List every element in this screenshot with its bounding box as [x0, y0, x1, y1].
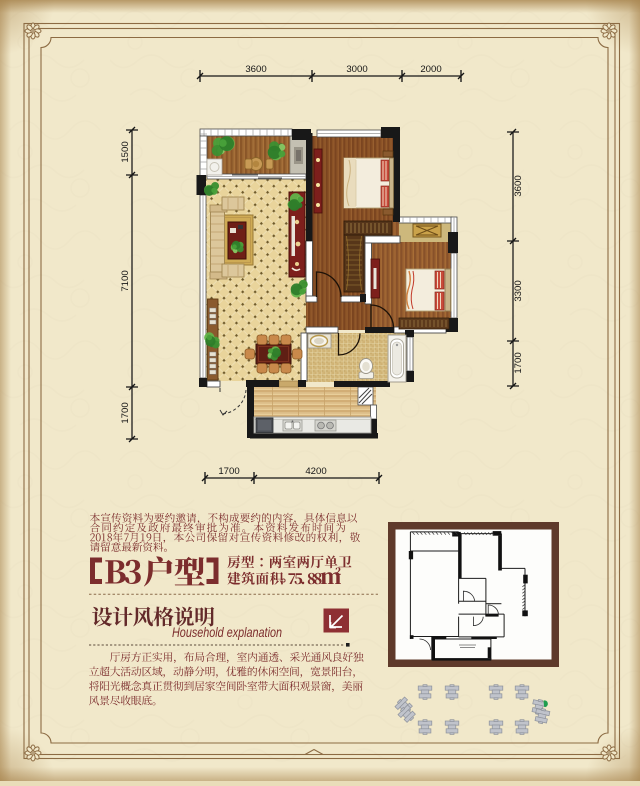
svg-text:1500: 1500 — [120, 141, 131, 162]
svg-text:3600: 3600 — [513, 175, 524, 196]
svg-text:1700: 1700 — [218, 466, 239, 477]
svg-text:3600: 3600 — [245, 64, 266, 75]
svg-text:1700: 1700 — [120, 402, 131, 423]
svg-text:3300: 3300 — [513, 280, 524, 301]
svg-text:Household explanation: Household explanation — [172, 624, 282, 640]
svg-text:1700: 1700 — [513, 352, 524, 373]
svg-text:4200: 4200 — [305, 466, 326, 477]
svg-text:3000: 3000 — [346, 64, 367, 75]
svg-text:7100: 7100 — [120, 270, 131, 291]
svg-text:2000: 2000 — [420, 64, 441, 75]
